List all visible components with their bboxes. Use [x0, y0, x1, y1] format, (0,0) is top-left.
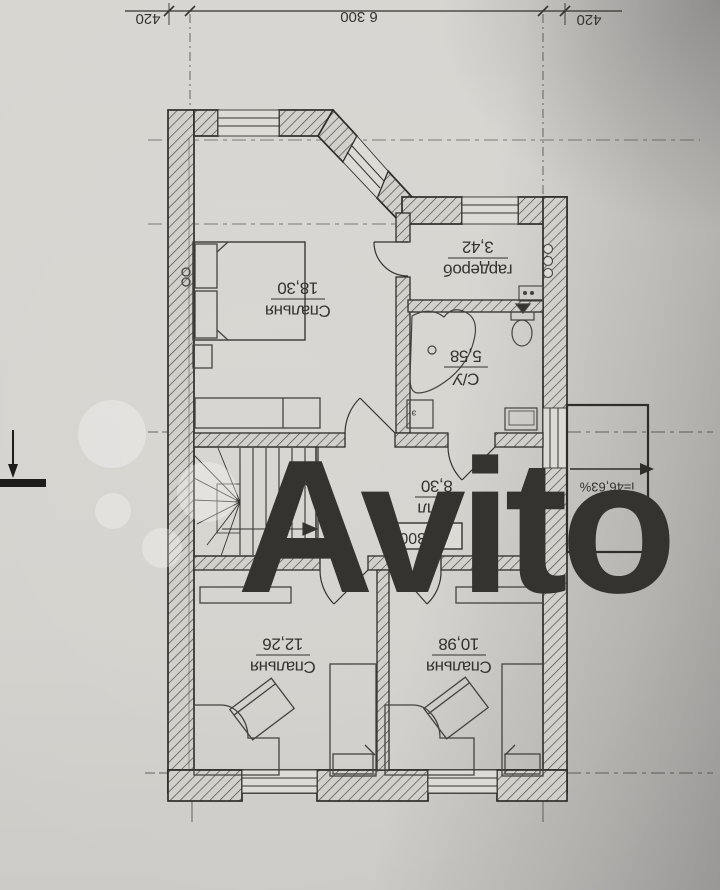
desk [230, 678, 294, 740]
floor-plan-drawing: 420 6 300 420 [0, 0, 720, 890]
watermark-logo-circle [78, 400, 146, 468]
room-name: Спальня [250, 658, 316, 677]
room-label-bedroom-right: Спальня 10,98 [426, 635, 492, 677]
room-name: Спальня [265, 302, 331, 321]
dim-6300: 6 300 [340, 8, 378, 25]
room-area: 3,42 [462, 238, 494, 257]
dim-420-left: 420 [135, 10, 160, 27]
boiler-tag: э [411, 409, 416, 419]
room-area: 18,30 [278, 279, 319, 298]
corner-desk [194, 705, 279, 775]
desk [424, 677, 488, 739]
room-name: С/У [452, 370, 479, 389]
watermark-logo-circle [142, 528, 182, 568]
nightstand [193, 345, 212, 368]
room-label-wardrobe: гардероб 3,42 [443, 238, 513, 280]
room-label-bathroom: С/У 5,58 [444, 347, 488, 389]
toilet-bowl [512, 320, 532, 346]
bed [502, 664, 543, 776]
room-name: гардероб [443, 261, 513, 280]
room-area: 12,26 [263, 635, 304, 654]
room-area: 10,98 [439, 635, 480, 654]
dim-420-right: 420 [576, 11, 601, 28]
room-name: Спальня [426, 658, 492, 677]
pillow [195, 244, 217, 288]
section-marker [0, 430, 46, 487]
watermark-logo-circle [95, 493, 131, 529]
bedroom-master-furniture [182, 242, 320, 428]
watermark-text: Avito [237, 421, 670, 633]
room-label-bedroom-left: Спальня 12,26 [250, 635, 316, 677]
pillow [195, 291, 217, 338]
bed [330, 664, 376, 776]
room-area: 5,58 [450, 347, 482, 366]
room-label-master: Спальня 18,30 [265, 279, 331, 321]
floor-plan-photo: 420 6 300 420 [0, 0, 720, 890]
watermark-logo-circle [177, 462, 237, 522]
watermark: Avito [78, 400, 670, 633]
down-arrow-icon [8, 464, 18, 478]
